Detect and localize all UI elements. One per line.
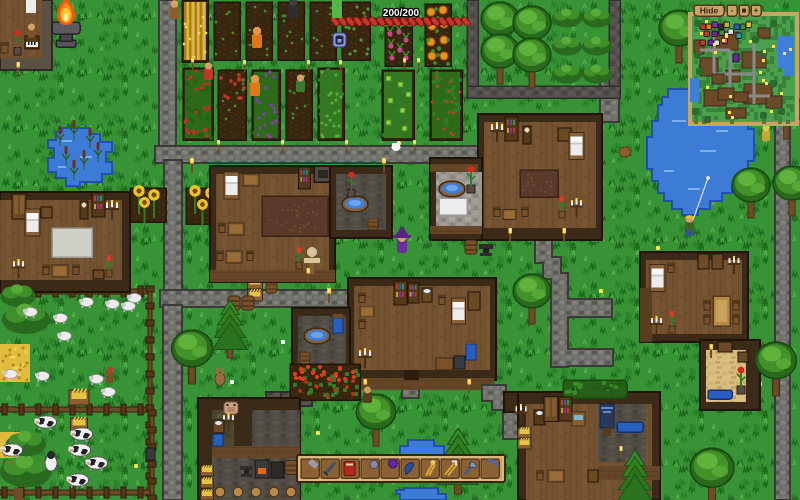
svg-text:Hide: Hide <box>700 6 719 16</box>
svg-text:+: + <box>754 6 759 15</box>
svg-text:-: - <box>731 6 734 15</box>
svg-text:■: ■ <box>742 6 747 15</box>
svg-text:200/200: 200/200 <box>383 8 420 19</box>
